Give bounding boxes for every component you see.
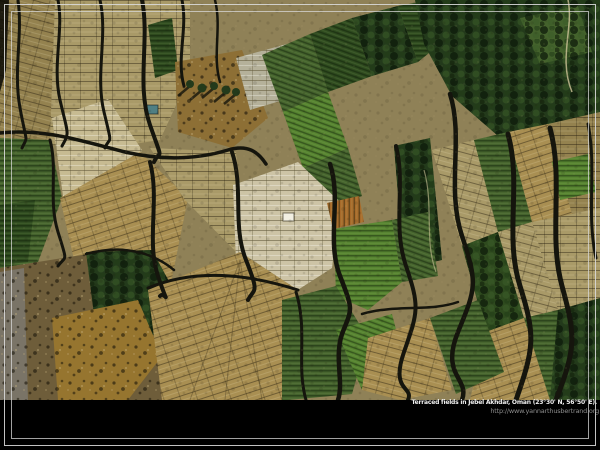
caption-band xyxy=(0,400,600,450)
grain-overlay xyxy=(0,0,600,400)
wallpaper-screenshot: Terraced fields in Jebel Akhdar, Oman (2… xyxy=(0,0,600,450)
aerial-photo-terraced-fields xyxy=(0,0,600,450)
